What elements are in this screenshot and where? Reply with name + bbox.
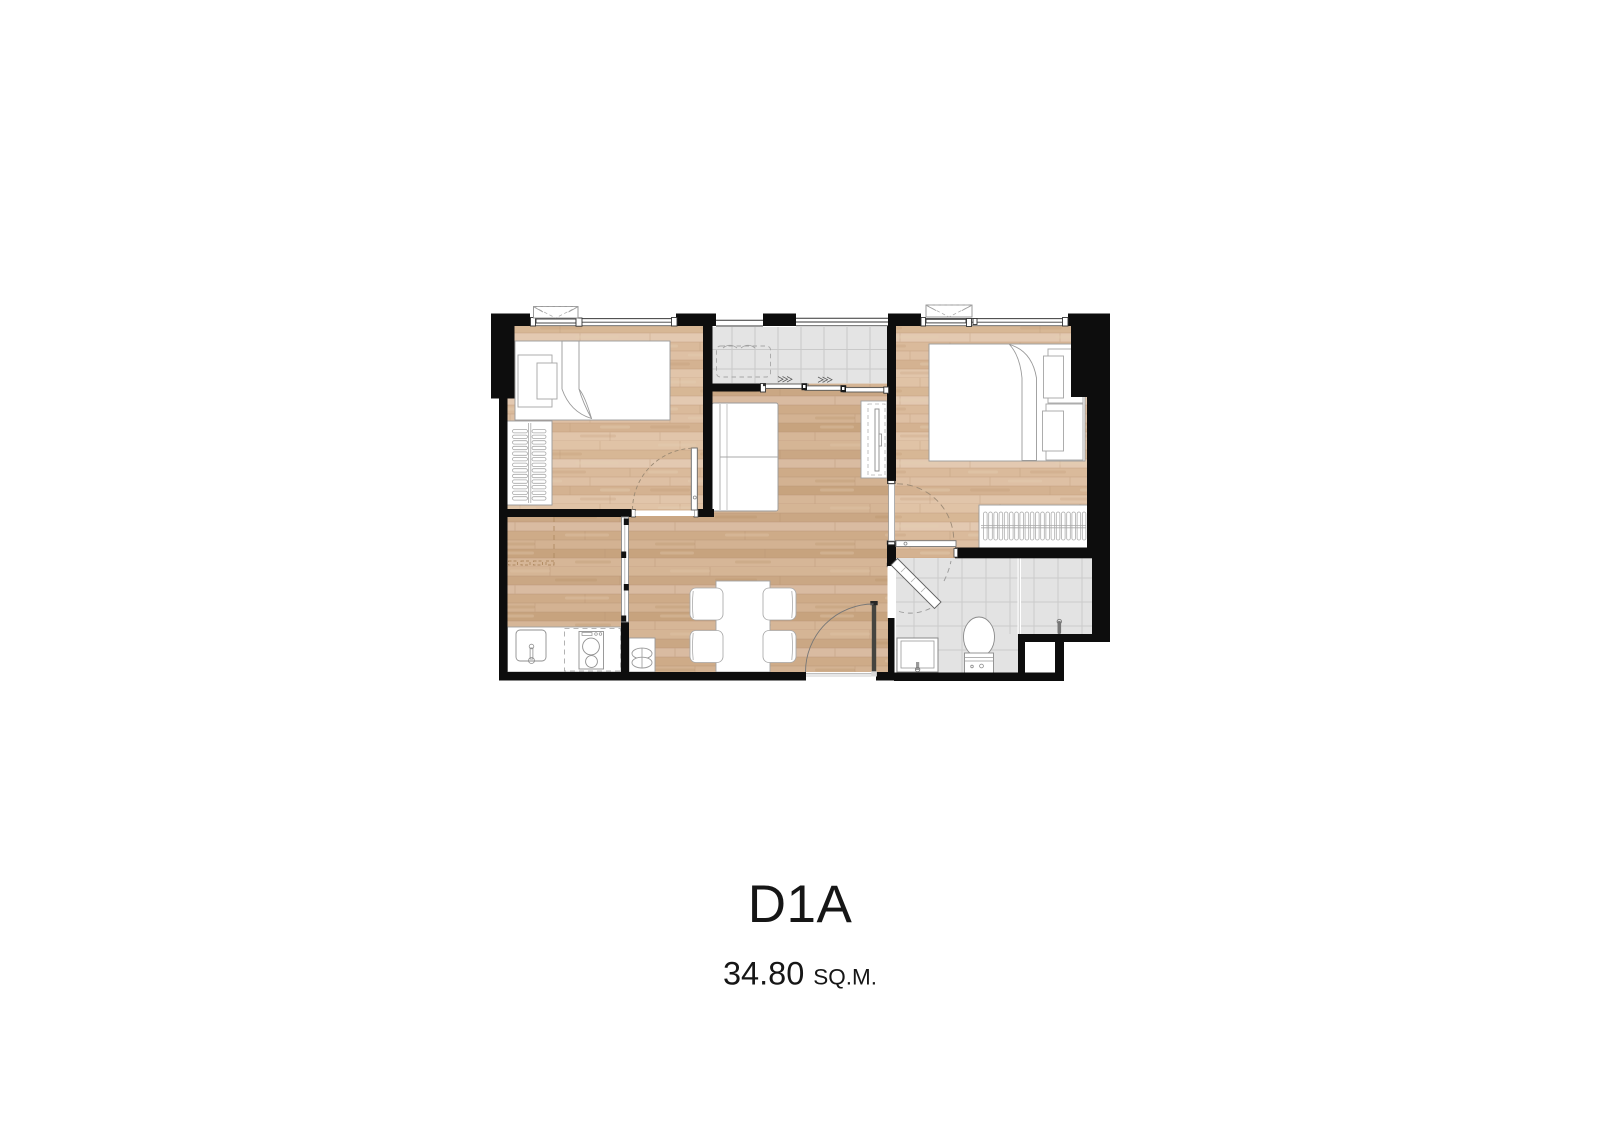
svg-text:D1A: D1A [748, 875, 853, 934]
svg-text:34.80 SQ.M.: 34.80 SQ.M. [723, 956, 877, 992]
